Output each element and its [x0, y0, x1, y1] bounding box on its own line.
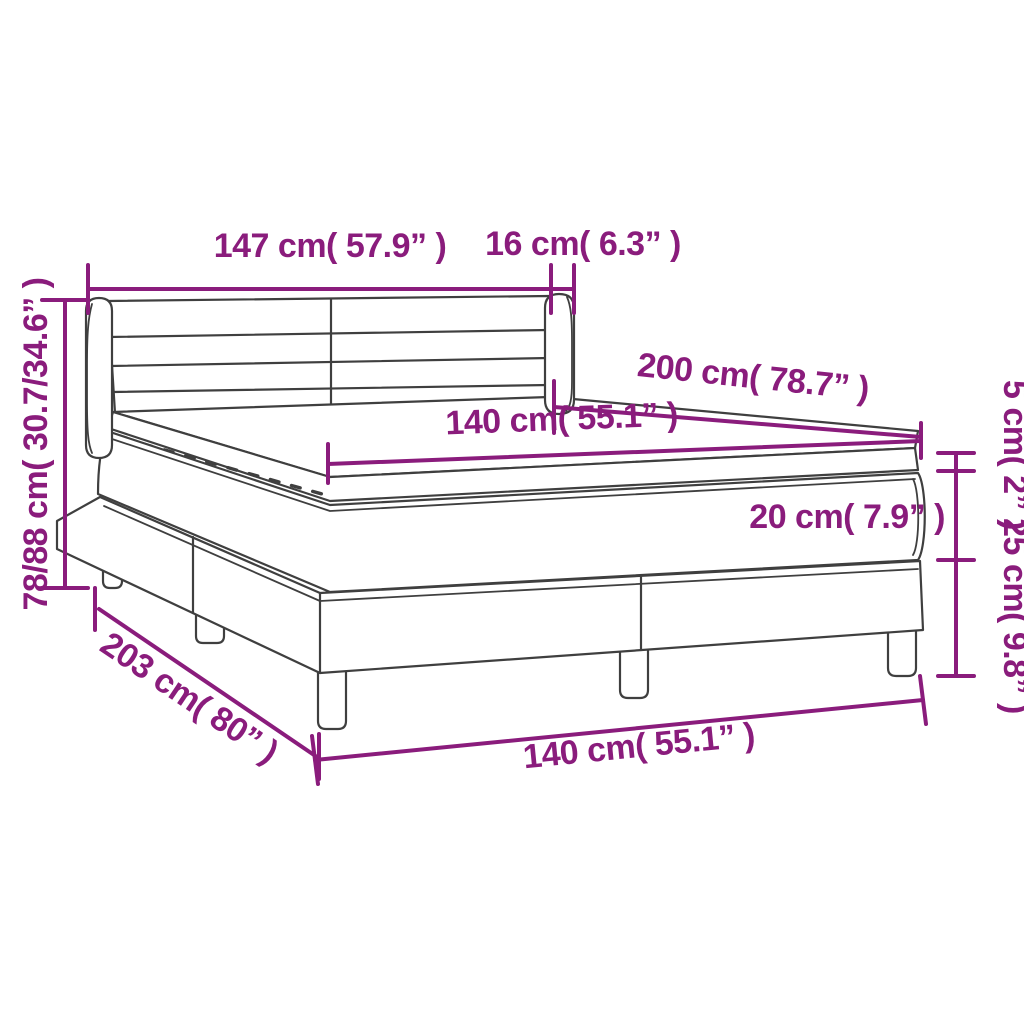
leg: [620, 645, 648, 698]
headboard-left-wing: [86, 298, 112, 458]
label-mattress-height: 20 cm( 7.9” ): [749, 498, 945, 536]
label-total-height: 78/88 cm( 30.7/34.6” ): [17, 277, 55, 610]
headboard-panel-outline: [108, 296, 549, 413]
bed-dimension-diagram: 147 cm( 57.9” ) 16 cm( 6.3” ) 78/88 cm( …: [0, 0, 1024, 1024]
diagram-canvas: 147 cm( 57.9” ) 16 cm( 6.3” ) 78/88 cm( …: [0, 0, 1024, 1024]
label-base-length: 203 cm( 80” ): [93, 625, 284, 771]
label-headboard-wing-depth: 16 cm( 6.3” ): [485, 225, 681, 263]
leg: [318, 665, 346, 729]
headboard-panel: [108, 296, 549, 413]
dim-layer-heights: [938, 453, 974, 676]
label-base-width: 140 cm( 55.1” ): [521, 716, 756, 777]
label-headboard-width: 147 cm( 57.9” ): [214, 227, 447, 265]
label-base-height: 25 cm( 9.8” ): [996, 518, 1024, 714]
label-topper-height: 5 cm( 2” ): [996, 380, 1024, 530]
